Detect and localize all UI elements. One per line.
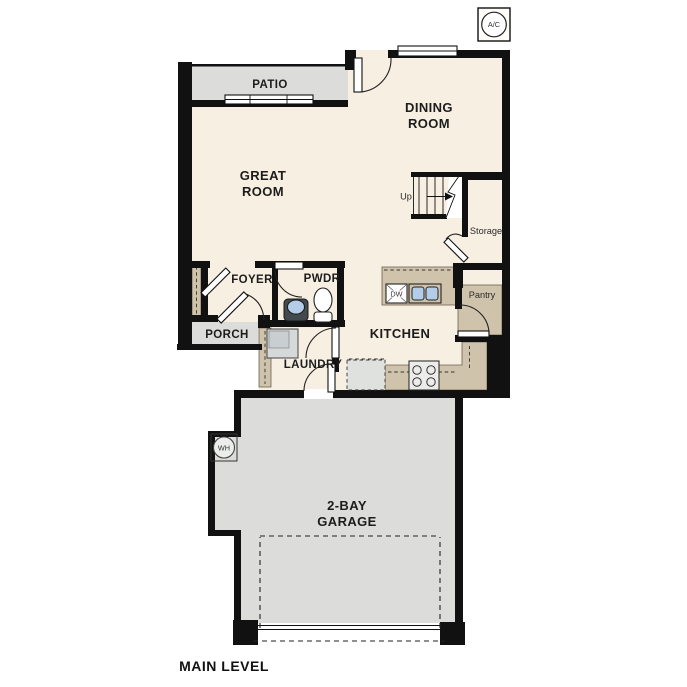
stair-top-bar: [411, 172, 464, 177]
pantry-label: Pantry: [469, 290, 496, 300]
wall-garage-right: [455, 398, 463, 629]
dishwasher-label: DW: [390, 290, 402, 299]
wall-kitchen-left: [337, 261, 344, 327]
wall-porch-bottom: [177, 344, 262, 350]
coat-closet: [192, 264, 201, 318]
great-room-label-1: GREAT: [240, 168, 287, 183]
dining-label-2: ROOM: [408, 116, 450, 131]
wall-se-corner: [487, 335, 510, 398]
storage-label: Storage: [470, 226, 502, 236]
floor-plan-page: A/C PATIO DINING ROOM GREAT ROOM Up Stor…: [0, 0, 687, 687]
laundry-label: LAUNDRY: [284, 359, 343, 371]
foyer-label: FOYER: [231, 274, 273, 286]
great-room-label-2: ROOM: [242, 184, 284, 199]
refrigerator-fixture: [347, 360, 385, 390]
wall-porch-top: [192, 315, 218, 322]
garage-overhead-door: [258, 623, 440, 636]
dining-window: [398, 46, 457, 56]
ac-label: A/C: [488, 20, 500, 29]
kitchen-sink-fixture: [409, 284, 441, 303]
wall-garage-left-2: [234, 530, 241, 629]
garage-label-2: GARAGE: [317, 514, 376, 529]
kitchen-label: KITCHEN: [370, 326, 431, 341]
water-heater-label: WH: [218, 444, 230, 453]
stair-bottom-bar: [411, 214, 447, 219]
wall-garage-top: [234, 390, 510, 398]
toilet-fixture: [314, 288, 332, 322]
up-label: Up: [400, 192, 412, 202]
wall-storage-bottom: [455, 263, 510, 270]
exterior-cutout: [175, 350, 259, 396]
powder-label: PWDR: [304, 273, 341, 285]
wall-garage-left-1: [234, 396, 241, 437]
porch-label: PORCH: [205, 329, 249, 341]
wall-stair-right: [462, 172, 468, 237]
stove-fixture: [409, 361, 439, 390]
plan-title: MAIN LEVEL: [179, 658, 269, 674]
patio-label: PATIO: [252, 79, 287, 91]
patio-sliding-door: [225, 95, 313, 104]
powder-sink-fixture: [284, 299, 308, 321]
dining-label-1: DINING: [405, 100, 453, 115]
garage-label-1: 2-BAY: [327, 498, 367, 513]
wall-left-exterior: [178, 62, 192, 350]
wall-patio-top: [178, 64, 348, 67]
floor-plan: A/C PATIO DINING ROOM GREAT ROOM Up Stor…: [0, 0, 687, 687]
washer-fixture: [267, 329, 298, 358]
